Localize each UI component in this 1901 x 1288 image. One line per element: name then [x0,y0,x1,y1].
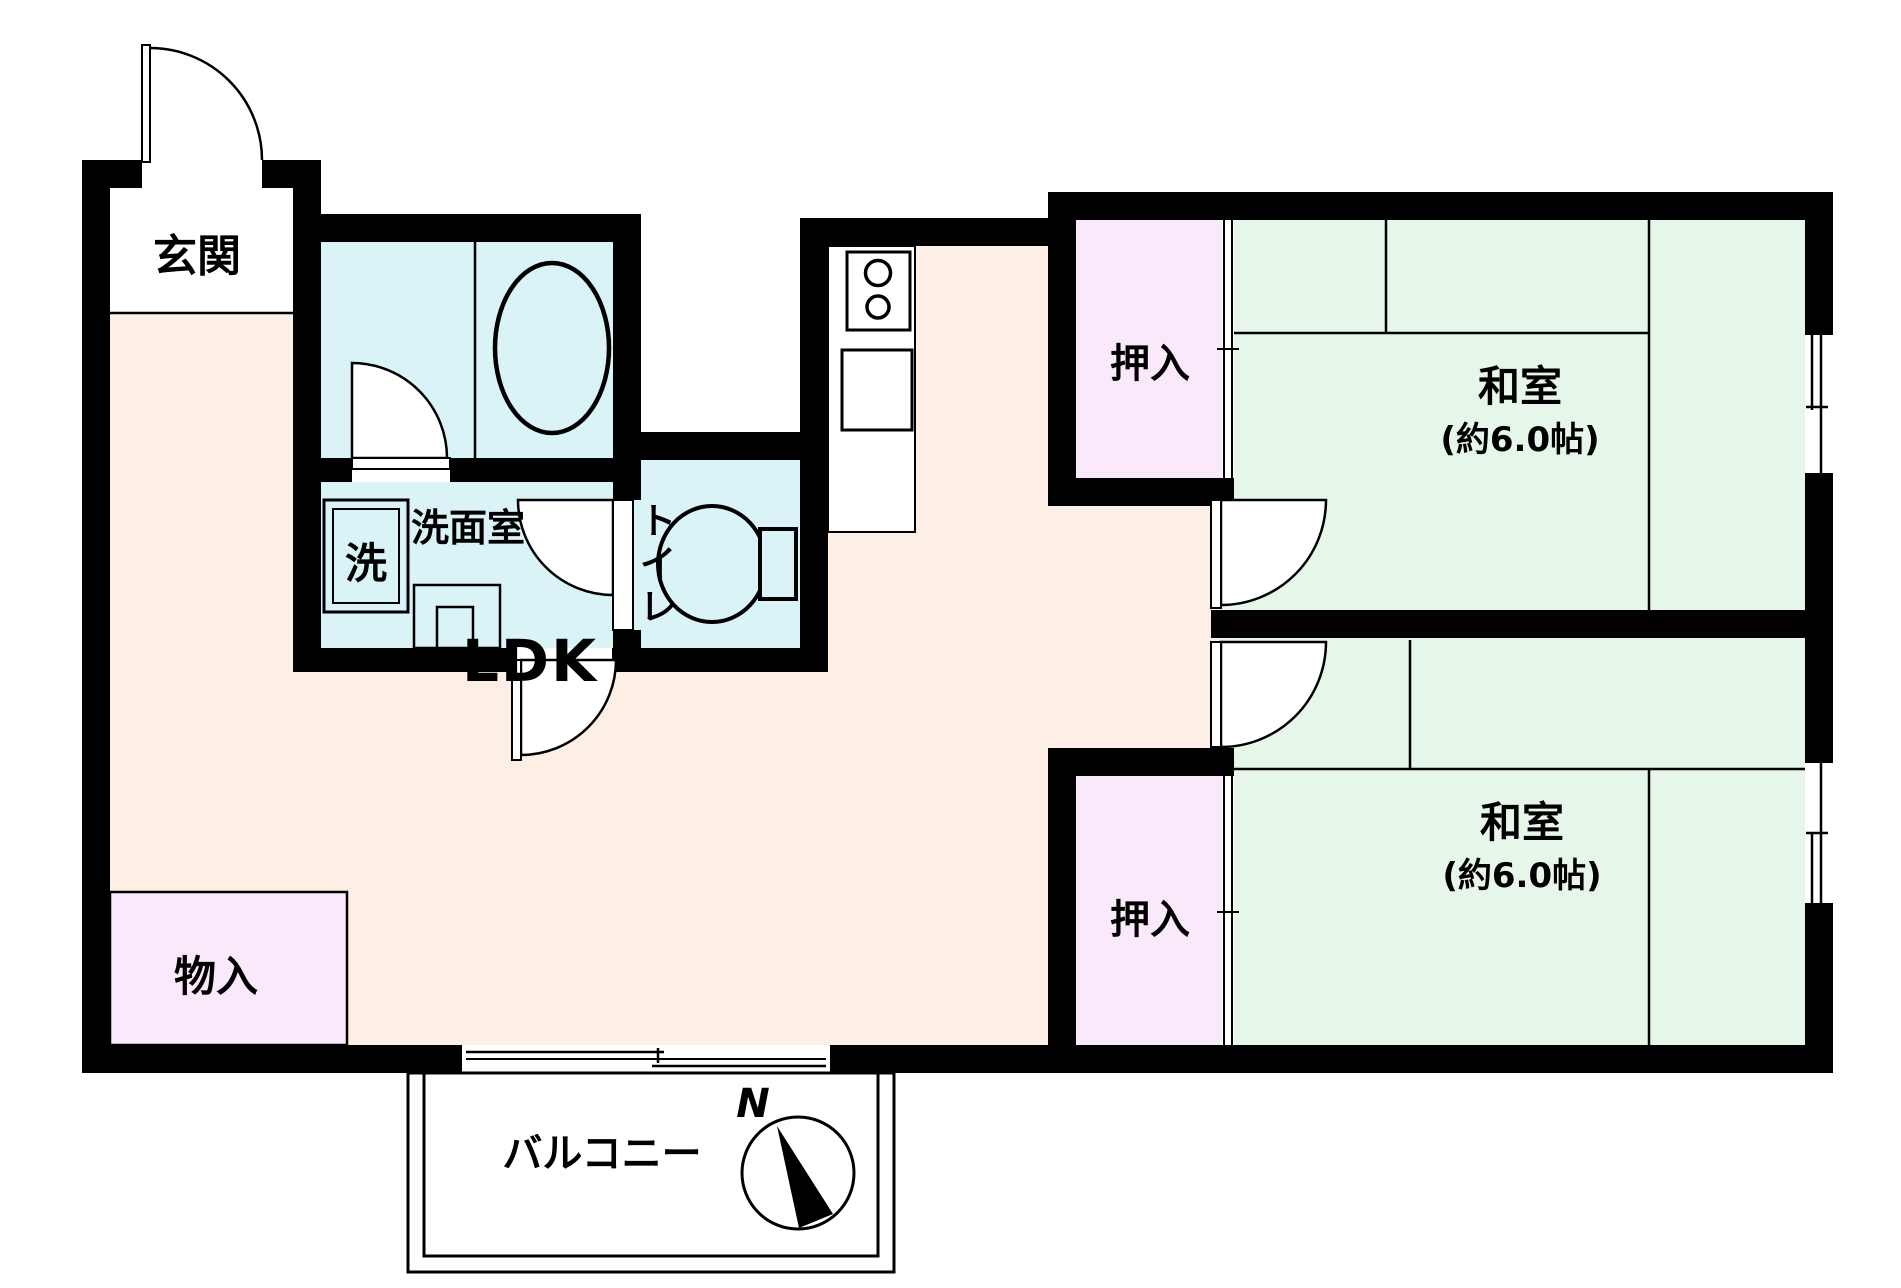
room-label-toilet-char: ト [640,501,676,542]
wall-segment [82,160,110,1073]
kitchen-counter [828,246,915,532]
ldk-floor-east-bulge [1048,506,1221,748]
wall-segment [1805,192,1833,1073]
wall-segment [613,630,641,672]
wall-segment [293,214,641,242]
room-label-oshiire-lower: 押入 [1110,897,1190,943]
room-label-senmenshitsu: 洗面室 [411,506,525,550]
door-opening [142,160,262,188]
wall-segment [82,1045,1833,1073]
door-leaf [613,500,633,630]
room-label-oshiire-upper: 押入 [1110,341,1190,387]
wall-segment [1048,748,1076,1073]
wall-segment [800,218,1076,246]
floorplan-drawing: N 玄関 LDK 物入 洗面室 洗 ト イ レ 押入 押入 和室 (約6.0帖)… [0,0,1901,1288]
stove-burner [866,261,891,286]
room-label-washitsu-lower: 和室 [1480,798,1564,847]
wall-segment [293,160,321,672]
room-label-toilet-char: レ [640,587,676,628]
laundry-label: 洗 [345,539,387,588]
window-upper [1805,335,1833,473]
room-label-ldk: LDK [462,627,598,695]
wall-segment [1048,748,1234,776]
room-size-washitsu-lower: (約6.0帖) [1442,856,1601,896]
door-leaf [142,45,150,162]
balcony-sliding-window [462,1045,830,1073]
toilet-tank [760,529,796,599]
door-leaf [352,458,450,469]
room-label-balcony: バルコニー [502,1131,701,1177]
stove-burner [867,296,889,318]
wall-segment [1048,192,1833,220]
window-lower [1805,763,1833,903]
wall-segment [613,214,641,460]
exterior-notch [641,200,800,432]
wall-segment [613,458,641,500]
door-leaf [1211,500,1221,608]
room-size-washitsu-upper: (約6.0帖) [1440,420,1599,460]
room-label-genkan: 玄関 [153,231,241,282]
wall-segment [1048,478,1234,506]
room-label-washitsu-upper: 和室 [1478,362,1562,411]
wall-segment [1211,610,1805,638]
floorplan-page: N 玄関 LDK 物入 洗面室 洗 ト イ レ 押入 押入 和室 (約6.0帖)… [0,0,1901,1288]
wall-segment [1048,220,1076,506]
room-label-toilet-char: イ [640,544,676,585]
wall-segment [612,648,828,672]
wall-segment [450,458,641,482]
room-label-monoire: 物入 [174,952,258,1001]
wall-segment [613,432,828,460]
door-leaf [1211,642,1221,747]
window-opening [1805,335,1833,473]
wall-segment [293,458,352,482]
sink-icon [842,350,912,430]
compass-north-label: N [736,1081,769,1127]
